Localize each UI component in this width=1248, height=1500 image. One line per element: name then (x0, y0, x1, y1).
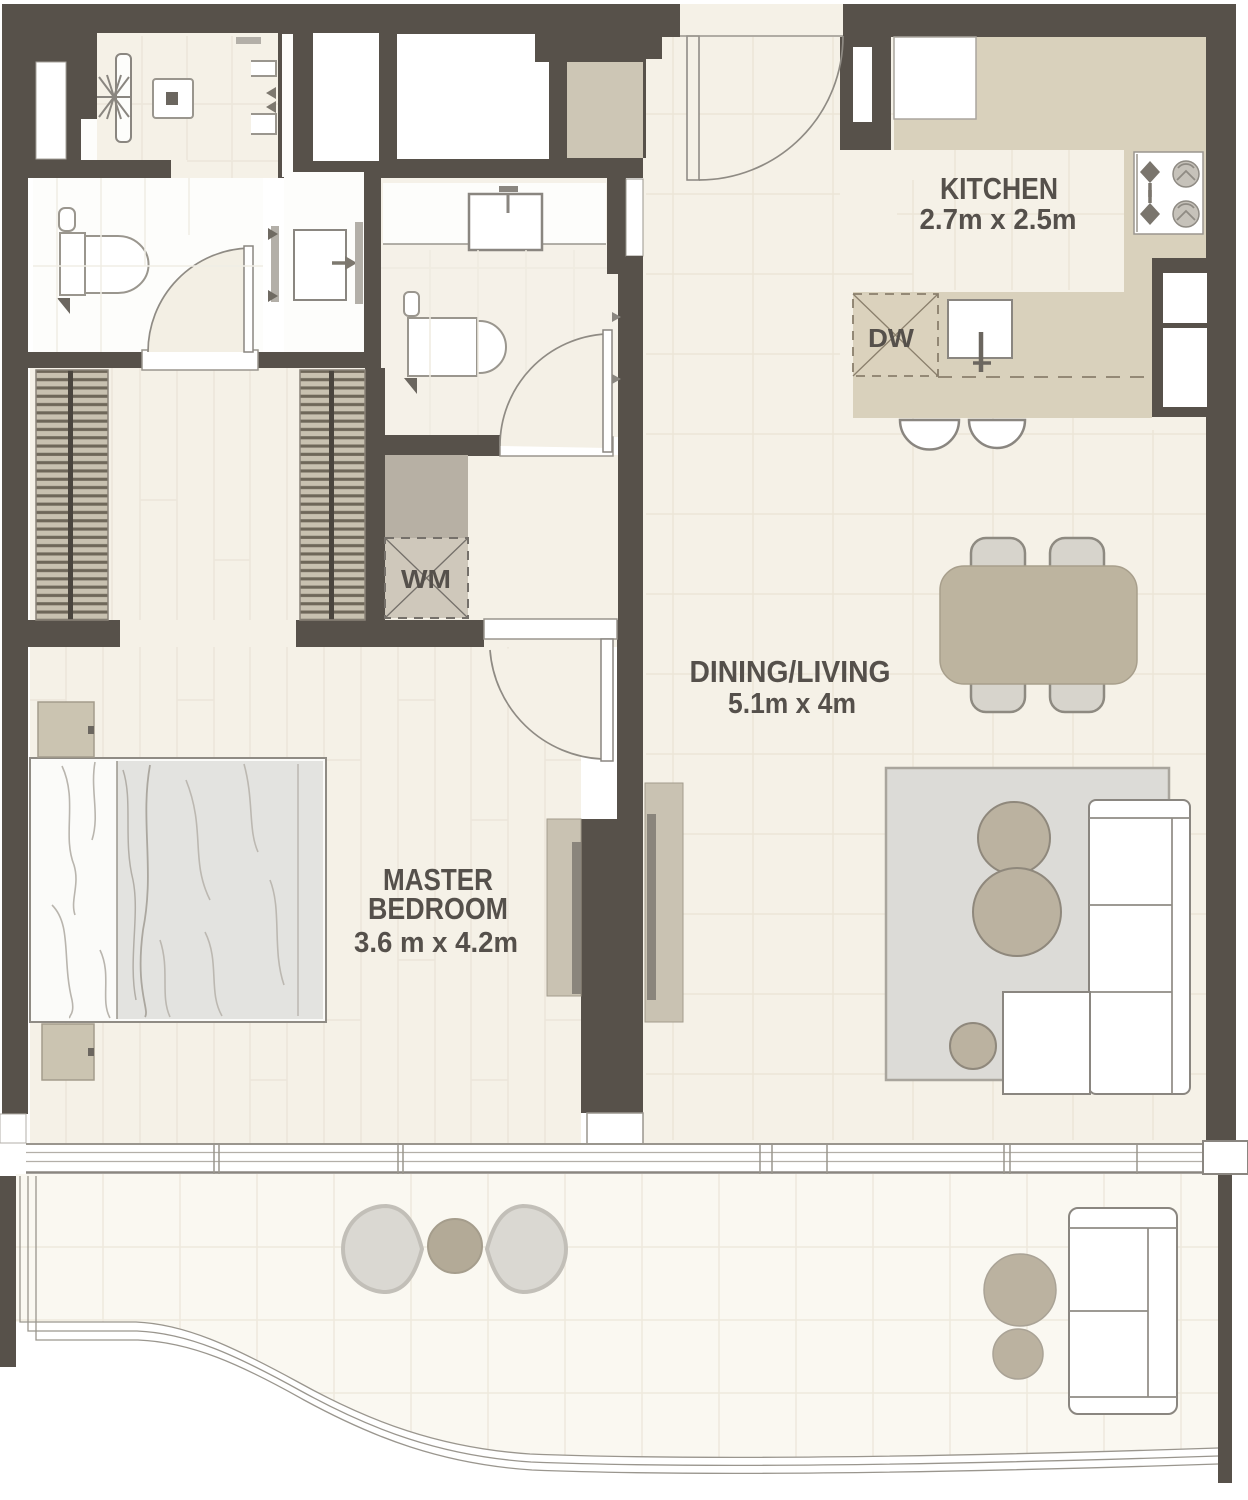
svg-text:2.7m x 2.5m: 2.7m x 2.5m (920, 204, 1077, 236)
svg-text:5.1m x 4m: 5.1m x 4m (728, 688, 856, 720)
svg-text:DW: DW (868, 323, 914, 353)
svg-text:KITCHEN: KITCHEN (940, 171, 1058, 206)
svg-text:WM: WM (401, 564, 451, 594)
svg-text:3.6 m x 4.2m: 3.6 m x 4.2m (354, 927, 518, 959)
svg-text:DINING/LIVING: DINING/LIVING (690, 654, 891, 689)
svg-text:BEDROOM: BEDROOM (368, 891, 508, 926)
